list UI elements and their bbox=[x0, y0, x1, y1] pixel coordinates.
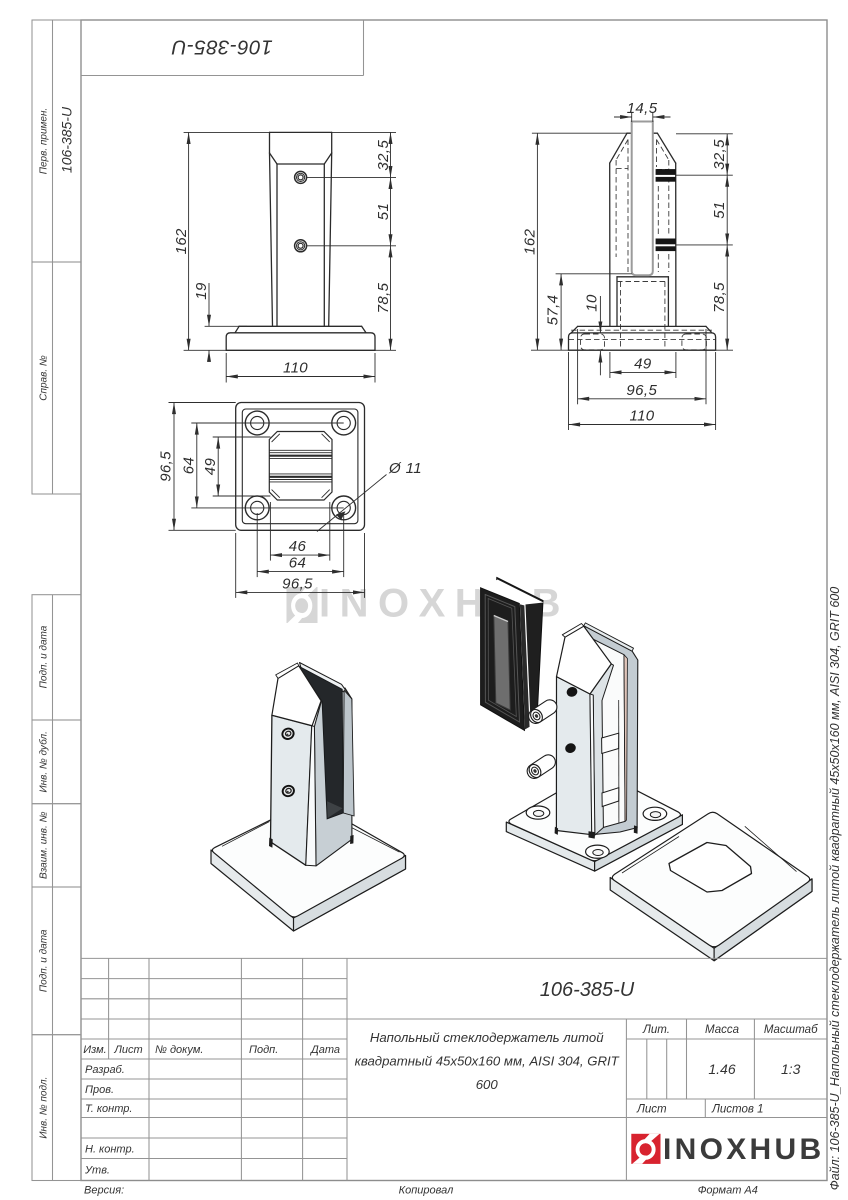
svg-text:Лист: Лист bbox=[113, 1044, 142, 1056]
svg-text:110: 110 bbox=[283, 360, 308, 377]
svg-text:Масса: Масса bbox=[705, 1024, 739, 1036]
svg-text:64: 64 bbox=[289, 555, 307, 572]
svg-text:162: 162 bbox=[522, 228, 539, 254]
svg-text:49: 49 bbox=[634, 355, 652, 372]
svg-text:78,5: 78,5 bbox=[375, 282, 392, 313]
svg-text:162: 162 bbox=[173, 228, 190, 254]
svg-text:Перв. примен.: Перв. примен. bbox=[39, 108, 50, 174]
svg-text:Утв.: Утв. bbox=[84, 1165, 110, 1177]
svg-text:Подп. и дата: Подп. и дата bbox=[39, 625, 50, 688]
svg-text:600: 600 bbox=[476, 1077, 499, 1092]
svg-text:57,4: 57,4 bbox=[545, 295, 562, 326]
svg-text:51: 51 bbox=[711, 201, 728, 219]
svg-text:96,5: 96,5 bbox=[158, 451, 175, 482]
svg-text:Подп.: Подп. bbox=[249, 1044, 278, 1056]
svg-text:Копировал: Копировал bbox=[399, 1185, 454, 1197]
svg-text:32,5: 32,5 bbox=[375, 140, 392, 171]
svg-text:64: 64 bbox=[181, 457, 198, 475]
svg-text:51: 51 bbox=[375, 203, 392, 221]
svg-text:Дата: Дата bbox=[309, 1044, 340, 1056]
svg-text:Взаим. инв. №: Взаим. инв. № bbox=[39, 811, 50, 879]
svg-text:96,5: 96,5 bbox=[626, 382, 657, 399]
svg-text:Пров.: Пров. bbox=[85, 1084, 114, 1096]
svg-text:Ø 11: Ø 11 bbox=[388, 460, 422, 477]
svg-text:Масштаб: Масштаб bbox=[764, 1024, 818, 1036]
svg-text:78,5: 78,5 bbox=[711, 282, 728, 313]
svg-text:1.46: 1.46 bbox=[708, 1061, 735, 1077]
svg-text:1:3: 1:3 bbox=[781, 1061, 801, 1077]
svg-text:106-385-U: 106-385-U bbox=[59, 106, 75, 173]
svg-text:Инв. № дубл.: Инв. № дубл. bbox=[38, 731, 50, 793]
svg-text:Лист: Лист bbox=[636, 1104, 667, 1116]
svg-text:INOXHUB: INOXHUB bbox=[663, 1133, 824, 1166]
svg-text:№ докум.: № докум. bbox=[155, 1044, 203, 1056]
svg-text:110: 110 bbox=[629, 408, 654, 425]
svg-text:Напольный стеклодержатель лито: Напольный стеклодержатель литой bbox=[370, 1030, 604, 1045]
svg-text:Версия:: Версия: bbox=[84, 1185, 124, 1197]
svg-text:Листов 1: Листов 1 bbox=[711, 1104, 763, 1116]
svg-text:106-385-U: 106-385-U bbox=[171, 36, 272, 59]
svg-text:квадратный 45х50х160 мм, AISI: квадратный 45х50х160 мм, AISI 304, GRIT bbox=[355, 1054, 620, 1069]
svg-text:Изм.: Изм. bbox=[83, 1044, 106, 1056]
svg-text:Н. контр.: Н. контр. bbox=[85, 1144, 135, 1156]
svg-text:19: 19 bbox=[193, 282, 210, 300]
svg-text:Подп. и дата: Подп. и дата bbox=[39, 929, 50, 992]
svg-text:32,5: 32,5 bbox=[711, 139, 728, 170]
svg-text:Инв. № подл.: Инв. № подл. bbox=[39, 1077, 50, 1139]
svg-text:96,5: 96,5 bbox=[282, 575, 313, 592]
svg-text:Разраб.: Разраб. bbox=[85, 1064, 125, 1076]
svg-text:Лит.: Лит. bbox=[642, 1024, 670, 1036]
svg-text:14,5: 14,5 bbox=[627, 100, 658, 117]
svg-text:46: 46 bbox=[289, 538, 307, 555]
svg-text:Справ. №: Справ. № bbox=[39, 355, 50, 401]
svg-text:Файл: 106-385-U_Напольный стек: Файл: 106-385-U_Напольный стеклодержател… bbox=[828, 587, 842, 1190]
svg-text:10: 10 bbox=[584, 294, 601, 312]
svg-text:Т. контр.: Т. контр. bbox=[85, 1103, 132, 1115]
svg-text:Формат А4: Формат А4 bbox=[698, 1185, 758, 1197]
svg-text:49: 49 bbox=[202, 458, 219, 476]
svg-text:106-385-U: 106-385-U bbox=[540, 979, 635, 1001]
